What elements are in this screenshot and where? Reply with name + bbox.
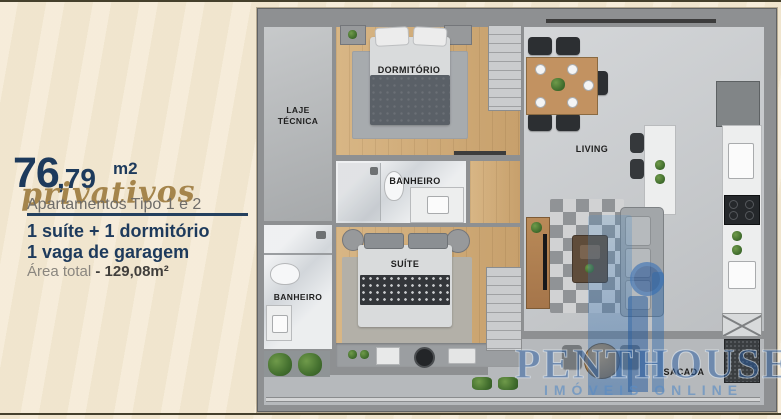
feature-vaga-garagem: 1 vaga de garagem [27, 242, 189, 263]
label-laje-tecnica: LAJE TÉCNICA [268, 105, 328, 126]
bathroom-vanity [266, 305, 292, 341]
plant-icon [655, 160, 665, 170]
dining-table [526, 57, 598, 115]
shower-head-icon [370, 167, 378, 175]
balcony-round-table [584, 343, 620, 379]
plant-icon [531, 222, 542, 233]
tv-panel [526, 217, 550, 309]
sink [427, 196, 449, 214]
dormitorio-closet [488, 25, 522, 111]
dining-chair [528, 37, 552, 55]
plant-icon [732, 245, 742, 255]
floor-plan: DORMITÓRIO BANHEIRO SUÍTE BANHEIRO LAJE … [257, 8, 777, 412]
plant-icon [268, 353, 292, 376]
suite-bed [358, 229, 452, 327]
label-banheiro-suite: BANHEIRO [365, 176, 465, 187]
label-living: LIVING [542, 144, 642, 155]
plant-icon [348, 30, 357, 39]
fridge [716, 81, 760, 127]
balcony-chair [562, 345, 582, 369]
kitchen-sink [728, 143, 754, 179]
label-banheiro-social: BANHEIRO [260, 292, 336, 303]
toilet [270, 263, 300, 285]
dining-chair [556, 113, 580, 131]
feature-suite-dormitorio: 1 suíte + 1 dormitório [27, 221, 210, 242]
balcony-railing [266, 397, 760, 402]
plant-icon [472, 377, 492, 390]
total-area-line: Área total - 129,08m² [27, 263, 169, 280]
sofa [620, 207, 664, 317]
dining-chair [556, 37, 580, 55]
shower-head-icon [316, 231, 326, 239]
hallway [470, 161, 520, 223]
total-area-label: Área total [27, 263, 91, 280]
kitchen-basin [728, 261, 756, 289]
bathroom-vanity [410, 187, 464, 223]
plant-icon [655, 174, 665, 184]
suite-wardrobe [486, 267, 522, 351]
label-dormitorio: DORMITÓRIO [354, 65, 464, 76]
cooktop [724, 195, 760, 225]
plant-icon [585, 264, 594, 273]
coffee-table [572, 235, 608, 283]
plant-icon [360, 350, 369, 359]
divider-line [27, 213, 248, 216]
bottom-frame-line [0, 413, 781, 415]
sink [272, 315, 288, 333]
floorplan-marketing-image: 76 ,79 m2 privativos Apartamentos Tipo 1… [0, 0, 781, 419]
total-area-value: - 129,08m² [95, 263, 168, 280]
door-threshold [454, 151, 506, 155]
bar-stool [630, 159, 644, 179]
plant-icon [551, 78, 565, 91]
label-suite: SUÍTE [355, 259, 455, 270]
plant-icon [298, 353, 322, 376]
label-sacada: SACADA [634, 367, 734, 378]
apartment-type-subtitle: Apartamentos Tipo 1 e 2 [27, 196, 201, 214]
shower-divider [264, 253, 332, 255]
window-strip [546, 19, 716, 23]
tv-screen [543, 234, 547, 290]
kitchen-island [644, 125, 676, 215]
nightstand [340, 25, 366, 45]
plant-icon [348, 350, 357, 359]
plant-icon [732, 231, 742, 241]
balcony-chair [620, 345, 640, 369]
plant-icon [498, 377, 518, 390]
top-frame-line [0, 0, 781, 2]
dining-chair [528, 113, 552, 131]
laundry-tank [722, 313, 762, 337]
